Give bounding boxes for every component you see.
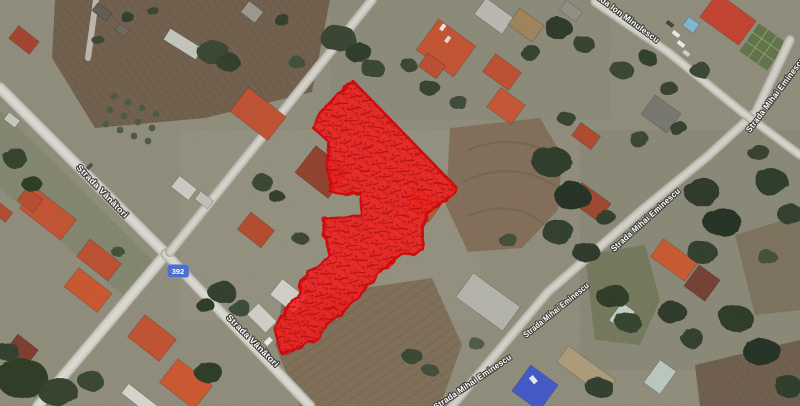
route-shield-392: 392 bbox=[167, 265, 189, 278]
satellite-map[interactable]: Strada Vânători Strada Vânători Strada M… bbox=[0, 0, 800, 406]
satellite-map-canvas[interactable]: Strada Vânători Strada Vânători Strada M… bbox=[0, 0, 800, 406]
route-shield-number: 392 bbox=[172, 267, 185, 276]
